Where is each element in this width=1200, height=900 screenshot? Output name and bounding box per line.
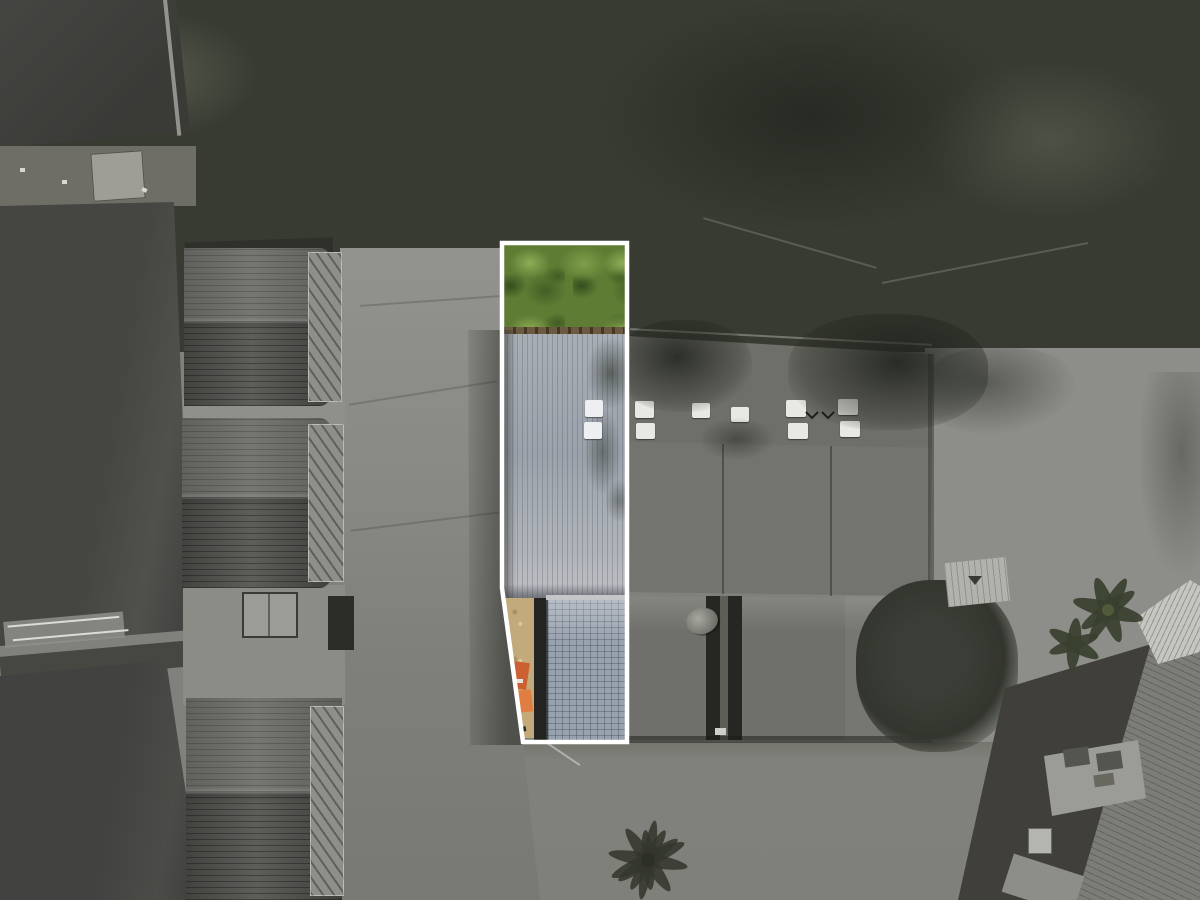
property-outline-svg: [0, 0, 1200, 900]
aerial-photo: [0, 0, 1200, 900]
property-boundary-outline: [502, 243, 627, 742]
